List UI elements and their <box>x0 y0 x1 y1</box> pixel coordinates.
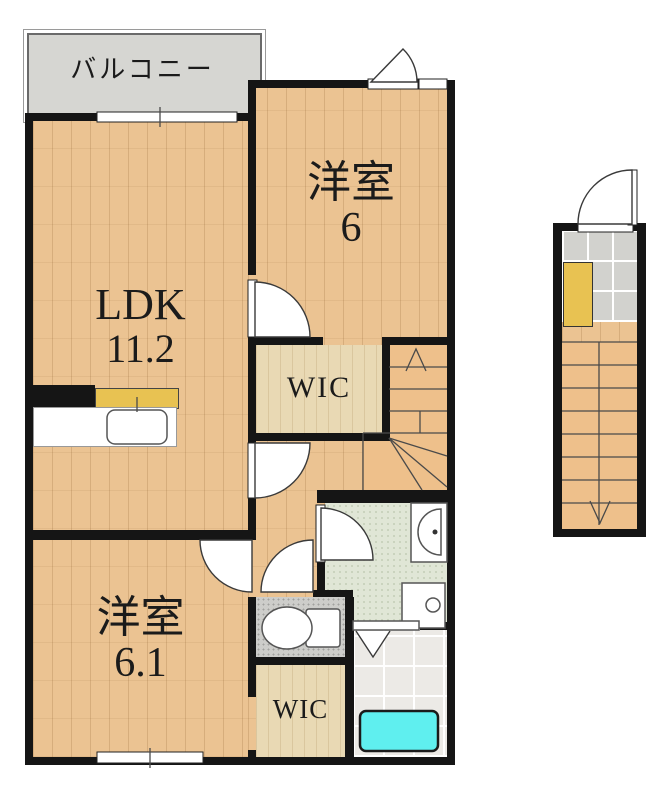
washroom-door-arc <box>321 508 373 560</box>
winder-line <box>389 438 447 487</box>
staircase-main <box>363 349 447 490</box>
bath-folding-door <box>356 631 390 657</box>
toilet-bowl <box>262 607 312 649</box>
room6-1-door-arc <box>200 540 252 592</box>
washing-machine-dial <box>426 598 440 612</box>
winder-line <box>389 438 422 490</box>
balcony-window <box>97 112 237 122</box>
bath-threshold <box>353 621 419 630</box>
room6-window <box>419 79 447 89</box>
plan-overlay <box>0 0 671 800</box>
stairs-down-arrow-icon <box>590 501 610 523</box>
kitchen-sink <box>107 410 167 444</box>
floor-plan: バルコニー 洋室 6 LDK 11.2 WIC 洋室 6.1 WIC <box>0 0 671 800</box>
winder-line <box>389 438 447 456</box>
washbasin-faucet <box>433 530 438 535</box>
staircase-entrance <box>562 342 637 525</box>
room6-top-door-arc <box>371 49 417 82</box>
entrance-door-arc <box>578 170 632 224</box>
toilet-door-arc <box>261 540 313 592</box>
stairs-up-arrow-icon <box>406 349 426 371</box>
room6-door-arc <box>255 282 310 337</box>
bathtub <box>360 711 438 751</box>
ldk-door-arc <box>255 443 310 498</box>
